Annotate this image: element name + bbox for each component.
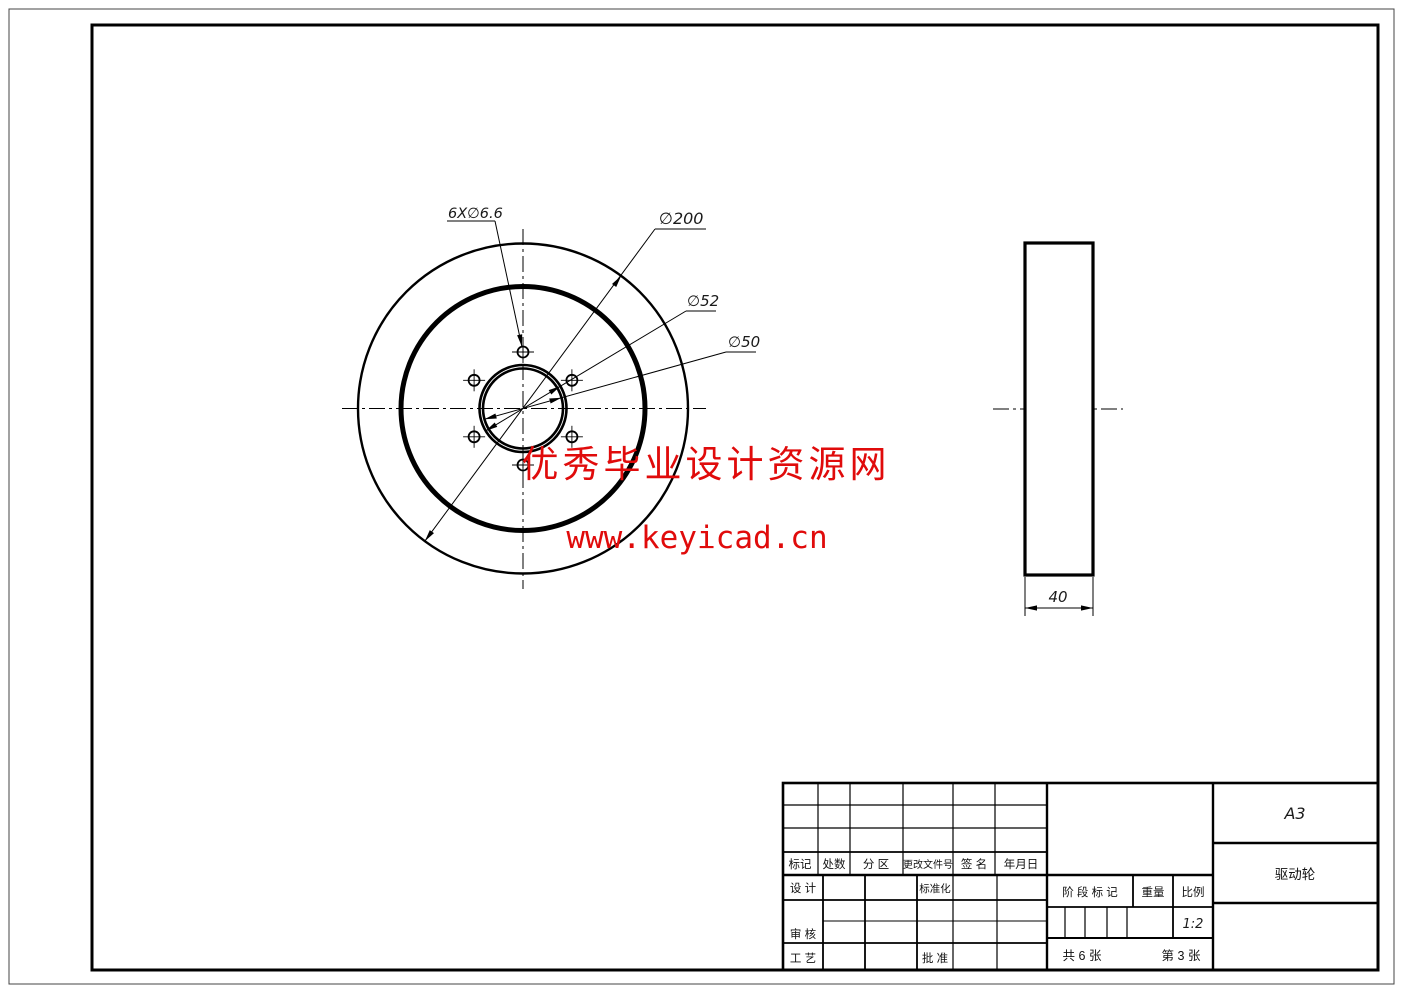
col-signature: 签 名 bbox=[961, 857, 987, 871]
sheets-total: 共 6 张 bbox=[1063, 948, 1102, 963]
dim-bolt-holes: 6X∅6.6 bbox=[447, 206, 522, 347]
sheet-frame bbox=[9, 9, 1394, 984]
stage-mark-label: 阶 段 标 记 bbox=[1062, 885, 1118, 899]
dim-outer-diameter: ∅200 bbox=[425, 209, 706, 541]
sheet-number: 第 3 张 bbox=[1162, 948, 1201, 963]
dim-hub-label: ∅52 bbox=[687, 292, 719, 310]
dim-thickness-label: 40 bbox=[1048, 588, 1067, 606]
watermark: 优秀毕业设计资源网 www.keyicad.cn bbox=[522, 444, 891, 556]
arrowhead bbox=[1025, 605, 1037, 610]
dim-bore-label: ∅50 bbox=[728, 333, 760, 351]
weight-label: 重量 bbox=[1142, 885, 1165, 899]
arrowhead bbox=[517, 334, 522, 346]
col-change-doc-no: 更改文件号 bbox=[903, 858, 953, 871]
standardization-label: 标准化 bbox=[919, 882, 951, 895]
signature-rows: 设 计 标准化 审 核 工 艺 批 准 bbox=[790, 882, 951, 965]
col-date: 年月日 bbox=[1004, 857, 1039, 871]
title-block: 标记 处数 分 区 更改文件号 签 名 年月日 设 计 标准化 审 核 工 艺 … bbox=[783, 783, 1378, 970]
col-mark: 标记 bbox=[789, 858, 812, 871]
process-label: 工 艺 bbox=[790, 952, 816, 965]
inner-frame bbox=[92, 25, 1378, 970]
bolt-hole bbox=[561, 369, 583, 391]
dim-thickness: 40 bbox=[1025, 577, 1093, 616]
dim-bolt-holes-label: 6X∅6.6 bbox=[448, 206, 503, 222]
side-view: 40 bbox=[993, 243, 1123, 616]
col-zone: 分 区 bbox=[863, 858, 889, 871]
scale-value: 1:2 bbox=[1183, 917, 1204, 932]
paper-size: A3 bbox=[1283, 804, 1305, 823]
bolt-hole bbox=[463, 426, 485, 448]
bolt-hole bbox=[512, 341, 534, 363]
check-label: 审 核 bbox=[790, 927, 817, 941]
arrowhead bbox=[485, 414, 497, 420]
dim-outer-label: ∅200 bbox=[659, 209, 703, 228]
arrowhead bbox=[425, 530, 434, 541]
design-label: 设 计 bbox=[790, 882, 817, 895]
watermark-site-url: www.keyicad.cn bbox=[566, 520, 827, 556]
revision-header-row: 标记 处数 分 区 更改文件号 签 名 年月日 bbox=[789, 857, 1039, 871]
outer-border bbox=[9, 9, 1394, 984]
approve-label: 批 准 bbox=[922, 951, 948, 965]
cad-canvas: ∅200 ∅52 ∅50 6X∅6.6 bbox=[0, 0, 1403, 992]
watermark-site-name: 优秀毕业设计资源网 bbox=[522, 444, 891, 485]
side-outline bbox=[1025, 243, 1093, 575]
arrowhead bbox=[549, 398, 561, 404]
bolt-hole bbox=[463, 369, 485, 391]
drawing-sheet: ∅200 ∅52 ∅50 6X∅6.6 bbox=[0, 0, 1403, 992]
col-count: 处数 bbox=[823, 857, 846, 871]
part-name: 驱动轮 bbox=[1275, 867, 1316, 882]
arrowhead bbox=[1081, 605, 1093, 610]
scale-label: 比例 bbox=[1182, 885, 1205, 899]
dim-bore-diameter: ∅50 bbox=[485, 333, 761, 419]
